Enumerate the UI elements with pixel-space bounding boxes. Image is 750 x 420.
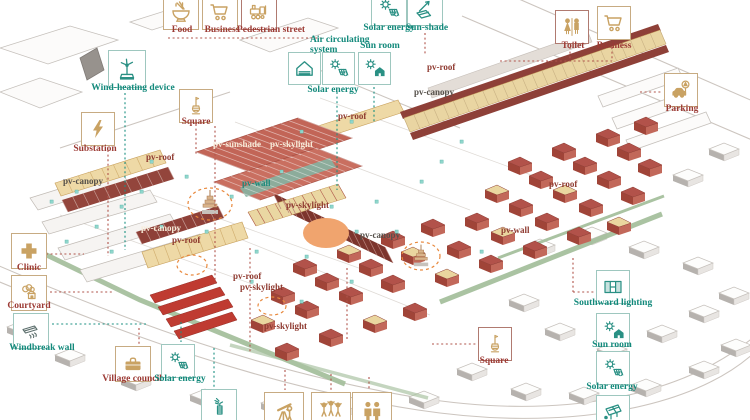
briefcase-icon	[121, 352, 145, 376]
hand-cart-icon	[247, 0, 271, 24]
legend-box-substation	[81, 112, 115, 146]
pv-skylight-label: pv-skylight	[240, 282, 283, 292]
pv-sunshade-label: pv-sunshade	[213, 139, 261, 149]
legend-box-solar-panel-bottom	[596, 395, 630, 420]
legend-box-business-right	[597, 6, 631, 40]
legend-label-business-right: Business	[588, 42, 640, 52]
toilet-icon	[560, 15, 584, 39]
windbreak-icon	[19, 319, 43, 343]
pv-canopy-label: pv-canopy	[63, 176, 103, 186]
legend-box-telescope	[264, 392, 304, 420]
legend-label-substation: Substation	[69, 145, 121, 155]
car-sign-icon	[669, 78, 693, 102]
pagoda-landmark	[202, 190, 218, 214]
pv-roof-label: pv-roof	[146, 152, 174, 162]
sun-house-icon	[363, 57, 386, 80]
plaza-ellipse	[303, 218, 349, 248]
sun-panel-icon	[602, 357, 625, 380]
two-people-icon	[358, 398, 386, 420]
lightning-icon	[86, 117, 110, 141]
legend-box-parking	[664, 73, 698, 107]
legend-box-dancing	[311, 392, 351, 420]
masterplan-canvas: Food Business Pedestrian street Air circ…	[0, 0, 750, 420]
solar-field	[150, 275, 237, 339]
sun-panel-icon	[327, 57, 350, 80]
pv-roof-label: pv-roof	[172, 235, 200, 245]
legend-label-courtyard: Courtyard	[5, 302, 53, 312]
legend-box-people	[352, 392, 392, 420]
window-icon	[601, 275, 625, 299]
shopping-cart-icon	[602, 11, 626, 35]
legend-label-windbreak: Windbreak wall	[0, 344, 84, 354]
pv-canopy-label: pv-canopy	[141, 223, 181, 233]
pv-skylight-label: pv-skylight	[286, 200, 329, 210]
sun-house-icon	[602, 319, 625, 342]
legend-box-air-circulating	[288, 52, 321, 85]
pv-skylight-label: pv-skylight	[270, 139, 313, 149]
pv-roof-label: pv-roof	[549, 179, 577, 189]
monument-icon	[184, 94, 208, 118]
pv-canopy-label: pv-canopy	[360, 230, 400, 240]
monument-icon	[483, 332, 507, 356]
pv-roof-label: pv-roof	[233, 271, 261, 281]
legend-box-solar-energy-bottom	[161, 344, 195, 378]
pv-wall-label: pv-wall	[501, 225, 530, 235]
legend-box-sun-room-mid	[358, 52, 391, 85]
pv-wall-label: pv-wall	[242, 178, 271, 188]
pv-roof-label: pv-roof	[338, 111, 366, 121]
spray-device-icon	[207, 395, 231, 419]
legend-box-spray-device	[201, 389, 237, 420]
legend-label-solar-energy-bottom: Solar energy	[150, 375, 210, 385]
legend-box-solar-energy-mid	[322, 52, 355, 85]
legend-label-wind-heating: Wind-heating device	[78, 84, 188, 94]
legend-box-toilet	[555, 10, 589, 44]
legend-label-solar-energy-mid: Solar energy	[299, 86, 367, 96]
vented-house-icon	[293, 57, 316, 80]
pv-roof-label: pv-roof	[427, 62, 455, 72]
legend-label-square-left: Square	[172, 118, 220, 128]
pv-skylight-label: pv-skylight	[264, 321, 307, 331]
legend-label-square-right: Square	[470, 357, 518, 367]
legend-label-sun-room-right: Sun room	[582, 341, 642, 351]
legend-label-sun-shade: Sun-shade	[393, 24, 461, 34]
legend-label-parking: Parking	[656, 105, 708, 115]
legend-label-pedestrian-street: Pedestrian street	[229, 26, 313, 36]
shade-panel-icon	[413, 0, 437, 20]
legend-label-southward-lighting: Southward lighting	[566, 299, 660, 309]
pv-canopy-label: pv-canopy	[414, 87, 454, 97]
legend-label-clinic: Clinic	[7, 264, 51, 274]
wind-turbine-icon	[114, 56, 140, 82]
sun-panel-icon	[377, 0, 401, 20]
legend-label-solar-energy-right: Solar energy	[578, 383, 646, 393]
noodle-bowl-icon	[169, 0, 193, 24]
shopping-cart-icon	[208, 0, 232, 24]
tilted-solar-panel-icon	[601, 400, 625, 420]
sun-panel-icon	[167, 350, 190, 373]
telescope-person-icon	[270, 398, 298, 420]
dancing-people-icon	[317, 398, 345, 420]
legend-box-solar-energy-right	[596, 351, 630, 385]
medical-cross-icon	[17, 239, 41, 263]
legend-label-sun-room-mid: Sun room	[352, 42, 408, 52]
